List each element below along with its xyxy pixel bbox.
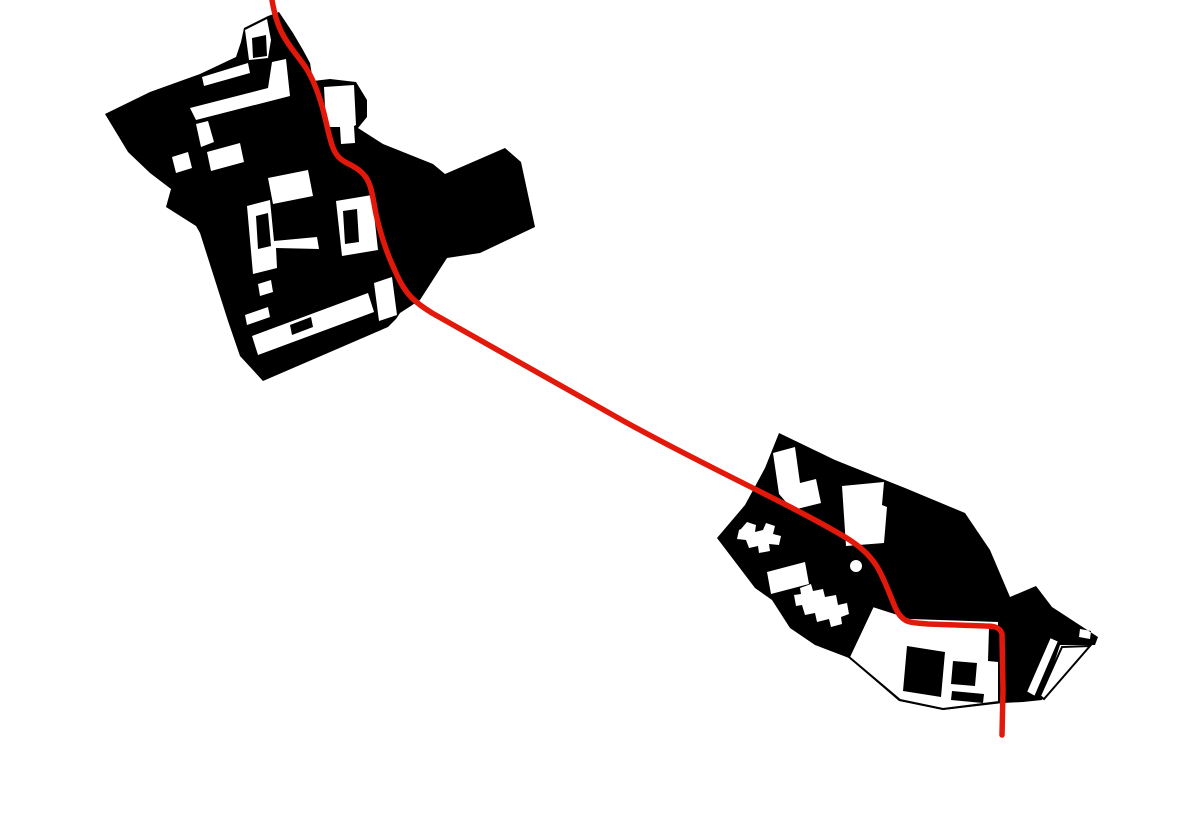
figure-ground-diagram xyxy=(0,0,1200,833)
diagram-canvas xyxy=(0,0,1200,833)
northwest-settlement-shape xyxy=(105,12,535,381)
